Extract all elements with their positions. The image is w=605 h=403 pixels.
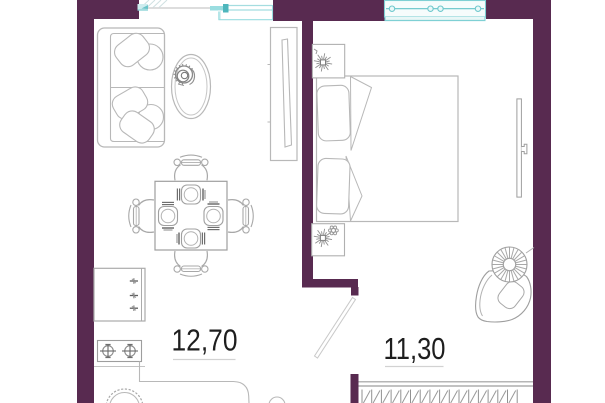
svg-text:12,70: 12,70 xyxy=(172,323,238,358)
svg-text:11,30: 11,30 xyxy=(384,331,446,366)
